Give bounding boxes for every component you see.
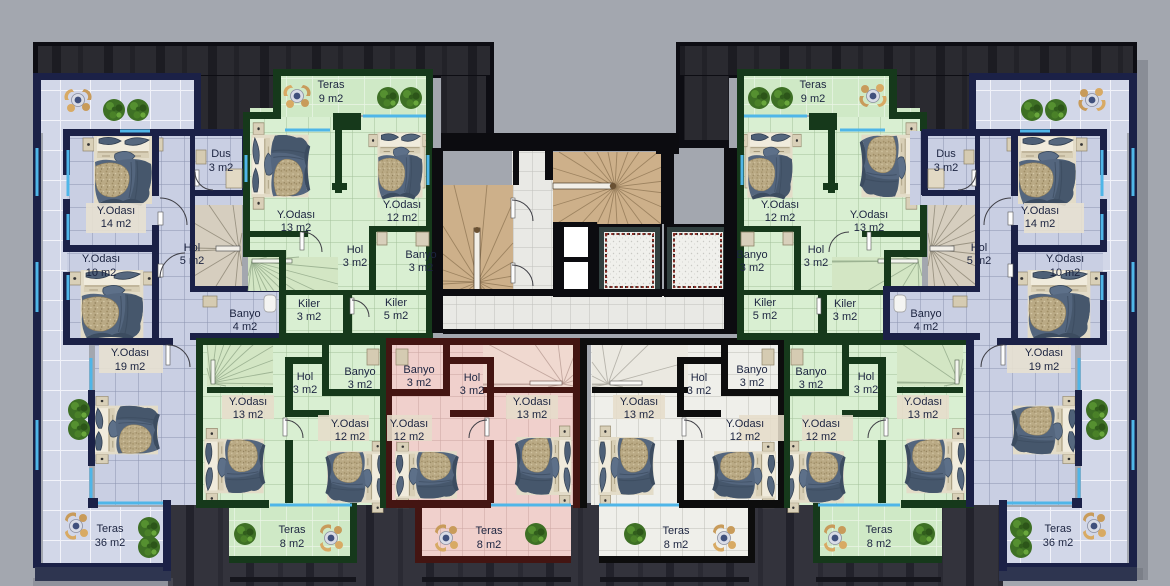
- svg-text:Banyo: Banyo: [344, 366, 375, 378]
- svg-text:Y.Odası: Y.Odası: [726, 418, 764, 430]
- svg-text:12 m2: 12 m2: [765, 212, 796, 224]
- svg-text:12 m2: 12 m2: [394, 431, 425, 443]
- svg-text:Kiler: Kiler: [754, 297, 776, 309]
- svg-text:36 m2: 36 m2: [95, 537, 126, 549]
- svg-text:3 m2: 3 m2: [934, 162, 958, 174]
- svg-text:Hol: Hol: [464, 372, 481, 384]
- svg-text:12 m2: 12 m2: [387, 212, 418, 224]
- svg-text:3 m2: 3 m2: [343, 257, 367, 269]
- svg-text:3 m2: 3 m2: [297, 311, 321, 323]
- svg-text:Hol: Hol: [858, 371, 875, 383]
- svg-text:Banyo: Banyo: [736, 364, 767, 376]
- svg-text:Dus: Dus: [936, 148, 956, 160]
- svg-text:Banyo: Banyo: [910, 308, 941, 320]
- svg-text:3 m2: 3 m2: [687, 385, 711, 397]
- svg-text:4 m2: 4 m2: [233, 321, 257, 333]
- svg-text:4 m2: 4 m2: [914, 321, 938, 333]
- svg-text:Y.Odası: Y.Odası: [331, 418, 369, 430]
- svg-text:Y.Odası: Y.Odası: [1021, 205, 1059, 217]
- svg-text:10 m2: 10 m2: [86, 267, 117, 279]
- svg-text:3 m2: 3 m2: [740, 377, 764, 389]
- svg-text:12 m2: 12 m2: [730, 431, 761, 443]
- svg-text:Y.Odası: Y.Odası: [97, 205, 135, 217]
- svg-text:Y.Odası: Y.Odası: [761, 199, 799, 211]
- svg-text:Y.Odası: Y.Odası: [802, 418, 840, 430]
- svg-text:3 m2: 3 m2: [460, 385, 484, 397]
- svg-text:3 m2: 3 m2: [833, 311, 857, 323]
- svg-text:Teras: Teras: [1045, 523, 1072, 535]
- svg-text:8 m2: 8 m2: [477, 539, 501, 551]
- svg-text:Banyo: Banyo: [229, 308, 260, 320]
- svg-text:Dus: Dus: [211, 148, 231, 160]
- svg-text:Teras: Teras: [318, 79, 345, 91]
- svg-text:14 m2: 14 m2: [1025, 218, 1056, 230]
- svg-text:Banyo: Banyo: [795, 366, 826, 378]
- svg-text:Y.Odası: Y.Odası: [620, 396, 658, 408]
- svg-text:Y.Odası: Y.Odası: [904, 396, 942, 408]
- svg-text:Hol: Hol: [971, 242, 988, 254]
- svg-text:Hol: Hol: [808, 244, 825, 256]
- svg-text:Banyo: Banyo: [405, 249, 436, 261]
- svg-text:12 m2: 12 m2: [806, 431, 837, 443]
- svg-text:13 m2: 13 m2: [854, 222, 885, 234]
- svg-text:3 m2: 3 m2: [854, 384, 878, 396]
- svg-text:Y.Odası: Y.Odası: [111, 347, 149, 359]
- svg-text:36 m2: 36 m2: [1043, 537, 1074, 549]
- svg-text:8 m2: 8 m2: [280, 538, 304, 550]
- svg-text:8 m2: 8 m2: [867, 538, 891, 550]
- svg-text:Teras: Teras: [663, 525, 690, 537]
- svg-text:Kiler: Kiler: [834, 298, 856, 310]
- svg-text:9 m2: 9 m2: [319, 93, 343, 105]
- svg-text:14 m2: 14 m2: [101, 218, 132, 230]
- svg-text:19 m2: 19 m2: [115, 361, 146, 373]
- svg-text:Kiler: Kiler: [385, 297, 407, 309]
- svg-text:3 m2: 3 m2: [740, 262, 764, 274]
- svg-text:19 m2: 19 m2: [1029, 361, 1060, 373]
- svg-text:Teras: Teras: [279, 524, 306, 536]
- svg-text:Hol: Hol: [691, 372, 708, 384]
- svg-text:Hol: Hol: [347, 244, 364, 256]
- svg-text:13 m2: 13 m2: [233, 409, 264, 421]
- svg-text:Teras: Teras: [866, 524, 893, 536]
- svg-text:9 m2: 9 m2: [801, 93, 825, 105]
- svg-text:10 m2: 10 m2: [1050, 267, 1081, 279]
- svg-text:Teras: Teras: [476, 525, 503, 537]
- svg-text:13 m2: 13 m2: [517, 409, 548, 421]
- svg-text:Hol: Hol: [297, 371, 314, 383]
- svg-text:Y.Odası: Y.Odası: [229, 396, 267, 408]
- svg-text:3 m2: 3 m2: [209, 162, 233, 174]
- svg-text:8 m2: 8 m2: [664, 539, 688, 551]
- svg-text:Y.Odası: Y.Odası: [1025, 347, 1063, 359]
- svg-text:Teras: Teras: [800, 79, 827, 91]
- svg-text:Banyo: Banyo: [403, 364, 434, 376]
- svg-text:Y.Odası: Y.Odası: [513, 396, 551, 408]
- svg-text:13 m2: 13 m2: [908, 409, 939, 421]
- svg-text:Hol: Hol: [184, 242, 201, 254]
- svg-text:Banyo: Banyo: [736, 249, 767, 261]
- svg-text:13 m2: 13 m2: [281, 222, 312, 234]
- svg-text:3 m2: 3 m2: [348, 379, 372, 391]
- svg-text:12 m2: 12 m2: [335, 431, 366, 443]
- svg-text:Kiler: Kiler: [298, 298, 320, 310]
- svg-text:Y.Odası: Y.Odası: [277, 209, 315, 221]
- svg-text:Y.Odası: Y.Odası: [383, 199, 421, 211]
- svg-text:3 m2: 3 m2: [407, 377, 431, 389]
- svg-text:13 m2: 13 m2: [624, 409, 655, 421]
- svg-text:Y.Odası: Y.Odası: [390, 418, 428, 430]
- svg-text:3 m2: 3 m2: [293, 384, 317, 396]
- svg-text:5 m2: 5 m2: [180, 255, 204, 267]
- svg-text:5 m2: 5 m2: [384, 310, 408, 322]
- svg-text:Y.Odası: Y.Odası: [1046, 253, 1084, 265]
- svg-text:Teras: Teras: [97, 523, 124, 535]
- svg-text:3 m2: 3 m2: [804, 257, 828, 269]
- svg-text:Y.Odası: Y.Odası: [82, 253, 120, 265]
- svg-text:Y.Odası: Y.Odası: [850, 209, 888, 221]
- svg-text:5 m2: 5 m2: [967, 255, 991, 267]
- svg-text:5 m2: 5 m2: [753, 310, 777, 322]
- svg-text:3 m2: 3 m2: [409, 262, 433, 274]
- svg-text:3 m2: 3 m2: [799, 379, 823, 391]
